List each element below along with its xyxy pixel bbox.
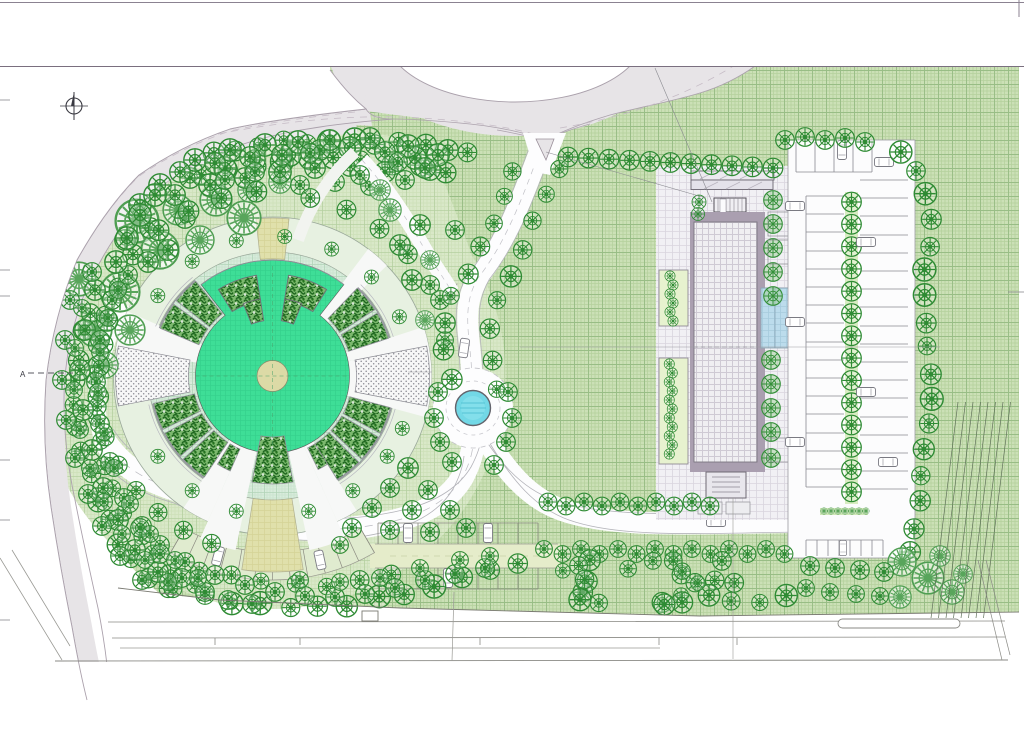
svg-text:A: A [20,370,26,379]
